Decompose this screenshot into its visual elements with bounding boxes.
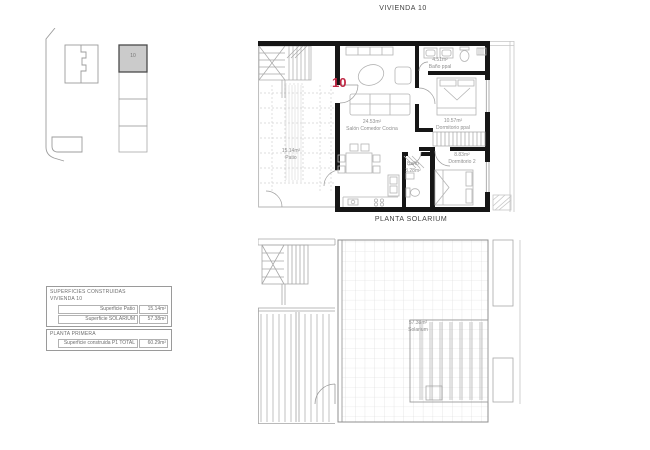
areas-table-box-1: SUPERFICIES CONSTRUIDAS VIVIENDA 10 Supe… xyxy=(46,286,172,327)
bedroom-2-furniture xyxy=(435,170,473,205)
areas-table-box-2: PLANTA PRIMERA Superficie construida P1 … xyxy=(46,329,172,352)
room-label-solarium: 57.38m² Solarium xyxy=(388,320,448,333)
areas-table-header-2: VIVIENDA 10 xyxy=(50,296,168,303)
areas-table-total-rows: Superficie construida P1 TOTAL 60.29m² xyxy=(58,339,168,348)
patio-grid xyxy=(260,85,334,192)
site-keyplan xyxy=(28,28,173,168)
room-label-bedroom-2: 8.83m² Dormitorio 2 xyxy=(437,152,487,165)
bath-main-name: Baño ppal xyxy=(415,64,465,71)
areas-table-header-1: SUPERFICIES CONSTRUIDAS xyxy=(50,289,168,296)
areas-table-section-header: PLANTA PRIMERA xyxy=(50,331,168,338)
wardrobe xyxy=(433,132,485,146)
solarium-right-strip xyxy=(493,240,520,404)
keyplan-pool-shape xyxy=(52,137,82,152)
table-total-row: Superficie construida P1 TOTAL 60.29m² xyxy=(58,339,168,348)
drawing-title: VIVIENDA 10 xyxy=(343,5,463,12)
row-label: Superficie Patio xyxy=(58,305,138,314)
room-label-living: 24.53m² Salón Comedor Cocina xyxy=(342,119,402,132)
bedroom-2-name: Dormitorio 2 xyxy=(437,159,487,166)
patio-name: Patio xyxy=(266,155,316,162)
keyplan-boundary xyxy=(46,28,64,161)
table-row: Superficie Patio 15.14m² xyxy=(58,305,168,314)
bath-2-area: 3.28m² xyxy=(398,168,428,175)
bedroom-main-furniture xyxy=(437,78,476,115)
bedroom-main-name: Dormitorio ppal xyxy=(428,125,478,132)
areas-table-rows: Superficie Patio 15.14m² Superficie SOLA… xyxy=(58,305,168,324)
kitchen-furniture xyxy=(338,144,399,207)
unit-number-label: 10 xyxy=(332,75,346,90)
areas-table: SUPERFICIES CONSTRUIDAS VIVIENDA 10 Supe… xyxy=(46,286,172,351)
keyplan-unit-label: 10 xyxy=(119,53,147,59)
solarium-left-pergola xyxy=(258,308,335,424)
patio-hedge-hatch xyxy=(285,84,303,181)
living-furniture xyxy=(346,47,411,115)
room-label-bath-2: Baño 3.28m² xyxy=(398,161,428,174)
solarium-plan-title: PLANTA SOLARIUM xyxy=(351,216,471,223)
row-label: Superficie SOLARIUM xyxy=(58,315,138,324)
table-row: Superficie SOLARIUM 57.38m² xyxy=(58,315,168,324)
row-value: 57.38m² xyxy=(139,315,168,324)
keyplan-building-footprint xyxy=(65,45,98,83)
drawing-page: VIVIENDA 10 PLANTA SOLARIUM 10 xyxy=(0,0,650,450)
total-row-label: Superficie construida P1 TOTAL xyxy=(58,339,138,348)
total-row-value: 60.29m² xyxy=(139,339,168,348)
room-label-patio: 15.14m² Patio xyxy=(266,148,316,161)
solarium-name: Solarium xyxy=(388,327,448,334)
solarium-stair-landing xyxy=(258,239,335,305)
keyplan-unit-stack xyxy=(119,72,147,152)
room-label-bedroom-main: 10.57m² Dormitorio ppal xyxy=(428,118,478,131)
living-name: Salón Comedor Cocina xyxy=(342,126,402,133)
exterior-lines xyxy=(490,41,514,212)
room-label-bath-main: 4.51m² Baño ppal xyxy=(415,57,465,70)
row-value: 15.14m² xyxy=(139,305,168,314)
